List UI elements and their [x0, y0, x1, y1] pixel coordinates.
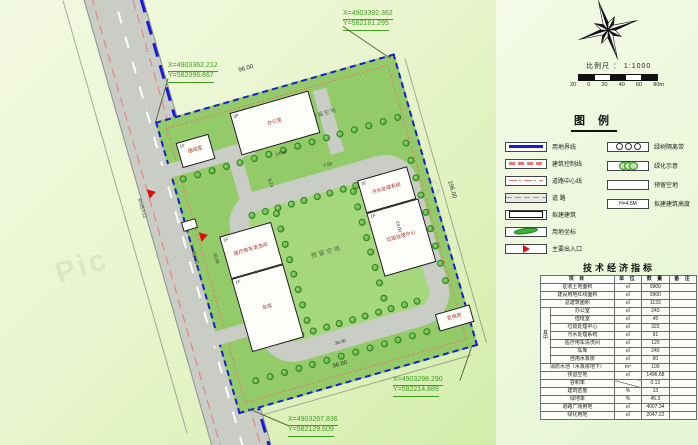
legend-item-green: 绿化示意: [607, 160, 697, 171]
building-label: 污水处理系统: [371, 183, 401, 197]
table-header-row: 项 目单 位数 量备 注: [541, 276, 697, 284]
legend-label: 绿化示意: [654, 161, 678, 170]
scale-label: 比例尺 ： 1:1000: [586, 61, 651, 71]
scale-tick: 20: [570, 82, 576, 88]
quantity-cell: 243: [641, 308, 669, 316]
legend-item-centerline: 道路中心线: [505, 175, 607, 186]
quantity-cell: 9900: [641, 284, 669, 292]
note-cell: [669, 292, 696, 300]
unit-cell: [614, 380, 641, 388]
item-cell: 垃圾处理中心: [551, 324, 615, 332]
item-cell: 消防水池（水泵房地下）: [541, 364, 615, 372]
quantity-cell: 91: [641, 332, 669, 340]
legend: 图 例 用地界线建筑控制线道路中心线道 路拟建建筑用地坐标主要出入口 绿树隔离带…: [505, 112, 697, 254]
table-row: 其中办公室㎡243: [541, 308, 697, 316]
quantity-cell: 13: [641, 388, 669, 396]
leader-line: [343, 26, 391, 59]
table-row: 绿化用地㎡2047.22: [541, 412, 697, 420]
scale-segment: [579, 75, 595, 80]
tree-icon: [349, 187, 358, 196]
item-cell: 建设用地红线面积: [541, 292, 615, 300]
table-header: 数 量: [641, 276, 669, 284]
tree-icon: [358, 218, 367, 227]
note-cell: [669, 332, 696, 340]
legend-item-building: 拟建建筑: [505, 209, 607, 220]
item-cell: 道路广场用地: [541, 404, 615, 412]
note-cell: [669, 308, 696, 316]
tree-circle-icon: [616, 143, 623, 150]
table-row: 容积率0.12: [541, 380, 697, 388]
tree-icon: [375, 279, 384, 288]
coordinate-y: Y=582096.867: [168, 72, 214, 82]
note-cell: [669, 340, 696, 348]
boundary-symbol-icon: [505, 142, 547, 152]
table-row: 垃圾处理中心㎡322: [541, 324, 697, 332]
item-cell: 绿化用地: [541, 412, 615, 420]
note-cell: [669, 284, 696, 292]
tree-icon: [353, 202, 362, 211]
item-cell: 总建筑面积: [541, 300, 615, 308]
table-row: 污水处理系统㎡91: [541, 332, 697, 340]
floor-tag: 1F: [370, 213, 376, 219]
table-header: 单 位: [614, 276, 641, 284]
quantity-cell: 240: [641, 348, 669, 356]
unit-cell: ㎡: [614, 332, 641, 340]
coordinate-callout-bottom-right: X=4903298.290 Y=582214.889: [393, 376, 443, 397]
control-symbol-icon: [505, 159, 547, 169]
legend-label: 用地坐标: [552, 227, 576, 236]
coordinate-y: Y=582181.295: [343, 20, 389, 30]
legend-item-coord: 用地坐标: [505, 226, 607, 237]
unit-cell: ㎡: [614, 284, 641, 292]
quantity-cell: 120: [641, 340, 669, 348]
tree-icon: [298, 301, 307, 310]
unit-cell: ㎡: [614, 340, 641, 348]
floor-tag: 1F: [235, 279, 241, 285]
note-cell: [669, 300, 696, 308]
dimension-top: 96.00: [238, 64, 254, 74]
quantity-cell: 9900: [641, 292, 669, 300]
table-row: 总建筑面积㎡1133: [541, 300, 697, 308]
unit-cell: ㎡: [614, 324, 641, 332]
scale-segment: [626, 75, 642, 80]
unit-cell: ㎡: [614, 300, 641, 308]
coordinate-y: Y=582129.609: [288, 426, 334, 436]
building-label: 值班室: [188, 146, 204, 156]
unit-cell: ㎡: [614, 348, 641, 356]
legend-label: 主要出入口: [552, 244, 582, 253]
note-cell: [669, 316, 696, 324]
coordinate-callout-top-right: X=4903392.362 Y=582181.295: [343, 10, 393, 31]
legend-item-entrance: 主要出入口: [505, 243, 607, 254]
item-cell: 建筑密度: [541, 388, 615, 396]
dimension-right: 196.00: [446, 180, 457, 199]
compass-rose-icon: [558, 0, 658, 64]
tree-icon: [407, 156, 416, 165]
leader-line: [460, 345, 473, 380]
floor-tag: 2F: [233, 113, 239, 119]
coord-symbol-icon: [505, 227, 547, 237]
item-cell: 征收土地面积: [541, 284, 615, 292]
unit-cell: ㎡: [614, 372, 641, 380]
table-title: 技术经济指标: [540, 261, 698, 274]
note-cell: [669, 404, 696, 412]
item-cell: 医疗用车清洗间: [551, 340, 615, 348]
unit-cell: ㎡: [614, 316, 641, 324]
legend-item-boundary: 用地界线: [505, 141, 607, 152]
table-row: 值班室㎡45: [541, 316, 697, 324]
note-cell: [669, 372, 696, 380]
tree-icon: [294, 285, 303, 294]
floor-tag: 1F: [360, 180, 366, 186]
tree-icon: [276, 224, 285, 233]
unit-cell: %: [614, 388, 641, 396]
item-cell: 绿地率: [541, 396, 615, 404]
item-cell: 值班室: [551, 316, 615, 324]
legend-item-circles: 绿树隔离带: [607, 141, 697, 152]
scale-tick: 80m: [653, 82, 664, 88]
legend-label: 预留空地: [654, 180, 678, 189]
building-label: 医疗用车清洗间: [234, 243, 269, 258]
tree-icon: [285, 255, 294, 264]
site-plan-canvas: Pic Pic 预留空地 预留空地 1F 值班室: [0, 0, 698, 445]
floor-tag: 1F: [179, 143, 185, 149]
quantity-cell: 2047.22: [641, 412, 669, 420]
legend-label: 道路中心线: [552, 176, 582, 185]
table-header: 备 注: [669, 276, 696, 284]
table-row: 道路广场用地㎡4007.34: [541, 404, 697, 412]
tree-icon: [362, 233, 371, 242]
floor-tag: 1F: [223, 236, 229, 242]
legend-item-road: 道 路: [505, 192, 607, 203]
item-cell: 车库: [551, 348, 615, 356]
coordinate-x: X=4903392.362: [343, 10, 393, 20]
legend-item-control: 建筑控制线: [505, 158, 607, 169]
table-row: 征收土地面积㎡9900: [541, 284, 697, 292]
greenery-blob-icon: [629, 162, 638, 170]
unit-cell: ㎡: [614, 308, 641, 316]
quantity-cell: 4007.34: [641, 404, 669, 412]
table-row: 建筑密度%13: [541, 388, 697, 396]
table-row: 自用水泵房㎡60: [541, 356, 697, 364]
item-cell: 污水处理系统: [551, 332, 615, 340]
tree-circle-icon: [625, 143, 632, 150]
legend-item-height: H=4.5M拟建建筑高度: [607, 198, 697, 209]
tree-icon: [272, 209, 281, 218]
table-row: 医疗用车清洗间㎡120: [541, 340, 697, 348]
reserved-symbol-icon: [607, 180, 649, 190]
item-cell: 办公室: [551, 308, 615, 316]
note-cell: [669, 388, 696, 396]
watermark: Pic: [51, 242, 113, 291]
scale-bar-ticks: 20020406080m: [570, 82, 664, 88]
unit-cell: ㎡: [614, 412, 641, 420]
building-symbol-icon: [505, 210, 547, 220]
table-header: 项 目: [541, 276, 615, 284]
unit-cell: m³: [614, 364, 641, 372]
scale-bar: [578, 74, 658, 81]
quantity-cell: 100: [641, 364, 669, 372]
note-cell: [669, 348, 696, 356]
coordinate-callout-top-left: X=4903362.212 Y=582096.867: [168, 62, 218, 83]
tree-icon: [281, 240, 290, 249]
note-cell: [669, 364, 696, 372]
unit-cell: ㎡: [614, 356, 641, 364]
road-symbol-icon: [505, 193, 547, 203]
legend-label: 建筑控制线: [552, 159, 582, 168]
tree-icon: [412, 173, 421, 182]
legend-item-reserved: 预留空地: [607, 179, 697, 190]
green-symbol-icon: [607, 161, 649, 171]
note-cell: [669, 356, 696, 364]
tree-icon: [436, 259, 445, 268]
quantity-cell: 1496.68: [641, 372, 669, 380]
item-cell: 容积率: [541, 380, 615, 388]
coordinate-x: X=4903298.290: [393, 376, 443, 386]
legend-label: 道 路: [552, 193, 566, 202]
legend-label: 拟建建筑高度: [654, 199, 690, 208]
indicators-table: 项 目单 位数 量备 注征收土地面积㎡9900建设用地红线面积㎡9900总建筑面…: [540, 275, 697, 420]
table-row: 绿地率%45.3: [541, 396, 697, 404]
quantity-cell: 0.12: [641, 380, 669, 388]
table-row: 建设用地红线面积㎡9900: [541, 292, 697, 300]
scale-segment: [595, 75, 611, 80]
quantity-cell: 322: [641, 324, 669, 332]
height-symbol-icon: H=4.5M: [607, 199, 649, 209]
legend-title: 图 例: [571, 112, 617, 132]
building-label: 垃圾处理中心: [386, 231, 416, 245]
tree-icon: [371, 263, 380, 272]
table-row: 预留空地㎡1496.68: [541, 372, 697, 380]
legend-left-column: 用地界线建筑控制线道路中心线道 路拟建建筑用地坐标主要出入口: [505, 141, 607, 254]
circles-symbol-icon: [607, 142, 649, 152]
quantity-cell: 60: [641, 356, 669, 364]
tree-icon: [402, 139, 411, 148]
note-cell: [669, 380, 696, 388]
note-cell: [669, 324, 696, 332]
coordinate-y: Y=582214.889: [393, 386, 439, 396]
legend-right-column: 绿树隔离带绿化示意预留空地H=4.5M拟建建筑高度: [607, 141, 697, 254]
scale-tick: 40: [619, 82, 625, 88]
building-label: 变电房: [447, 313, 463, 323]
table-row: 消防水池（水泵房地下）m³100: [541, 364, 697, 372]
legend-label: 用地界线: [552, 142, 576, 151]
scale-segment: [641, 75, 657, 80]
note-cell: [669, 396, 696, 404]
coordinate-x: X=4903362.212: [168, 62, 218, 72]
note-cell: [669, 412, 696, 420]
table-row: 车库㎡240: [541, 348, 697, 356]
tree-icon: [366, 248, 375, 257]
item-cell: 预留空地: [541, 372, 615, 380]
unit-cell: %: [614, 396, 641, 404]
legend-label: 绿树隔离带: [654, 142, 684, 151]
building-label: 车库: [262, 304, 273, 312]
entrance-symbol-icon: [505, 244, 547, 254]
coordinate-callout-bottom-left: X=4903267.836 Y=582129.609: [288, 416, 338, 437]
item-cell: 自用水泵房: [551, 356, 615, 364]
group-cell: 其中: [541, 308, 551, 364]
quantity-cell: 1133: [641, 300, 669, 308]
north-arrow: [558, 0, 658, 64]
quantity-cell: 45.3: [641, 396, 669, 404]
building-label: 办公室: [267, 118, 283, 128]
unit-cell: ㎡: [614, 292, 641, 300]
tree-icon: [290, 270, 299, 279]
quantity-cell: 45: [641, 316, 669, 324]
tree-circle-icon: [634, 143, 641, 150]
coordinate-x: X=4903267.836: [288, 416, 338, 426]
scale-tick: 0: [587, 82, 590, 88]
scale-segment: [610, 75, 626, 80]
legend-label: 拟建建筑: [552, 210, 576, 219]
centerline-symbol-icon: [505, 176, 547, 186]
unit-cell: ㎡: [614, 404, 641, 412]
scale-tick: 60: [636, 82, 642, 88]
scale-tick: 20: [601, 82, 607, 88]
